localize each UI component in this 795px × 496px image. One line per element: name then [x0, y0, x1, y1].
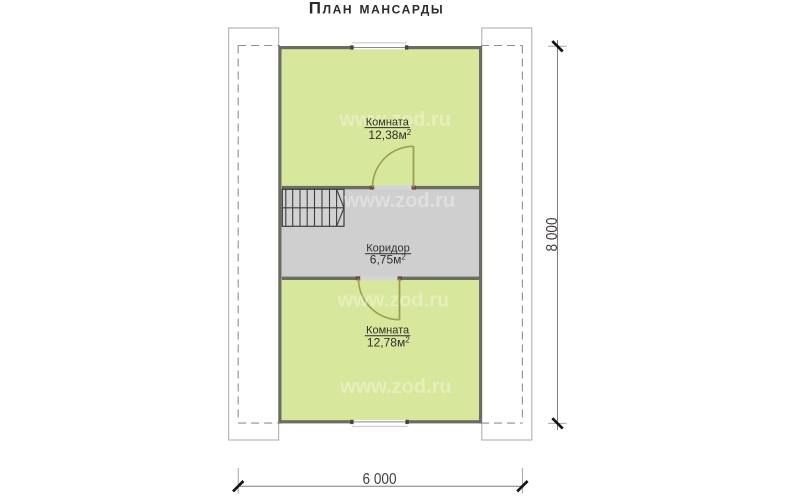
svg-text:www.zod.ru: www.zod.ru: [337, 289, 449, 311]
svg-text:www.zod.ru: www.zod.ru: [339, 376, 451, 398]
svg-text:12,38м2: 12,38м2: [368, 128, 411, 142]
svg-text:6 000: 6 000: [363, 471, 397, 488]
svg-text:План мансарды: План мансарды: [309, 0, 444, 18]
svg-text:6,75м2: 6,75м2: [370, 253, 407, 267]
svg-text:Комната: Комната: [366, 116, 410, 128]
svg-text:8 000: 8 000: [544, 218, 561, 252]
svg-text:12,78м2: 12,78м2: [367, 336, 410, 350]
svg-text:www.zod.ru: www.zod.ru: [343, 190, 455, 212]
